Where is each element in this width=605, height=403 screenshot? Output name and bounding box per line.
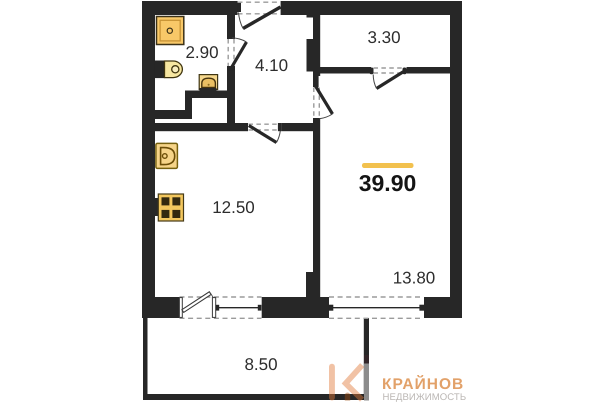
svg-text:4.10: 4.10 (255, 56, 288, 75)
svg-text:2.90: 2.90 (185, 43, 218, 62)
svg-text:13.80: 13.80 (393, 269, 436, 288)
svg-text:8.50: 8.50 (244, 355, 277, 374)
svg-text:12.50: 12.50 (212, 198, 255, 217)
svg-text:39.90: 39.90 (359, 170, 417, 196)
svg-text:КРАЙНОВ: КРАЙНОВ (382, 374, 464, 393)
svg-text:3.30: 3.30 (367, 28, 400, 47)
svg-text:НЕДВИЖИМОСТЬ: НЕДВИЖИМОСТЬ (383, 392, 467, 403)
